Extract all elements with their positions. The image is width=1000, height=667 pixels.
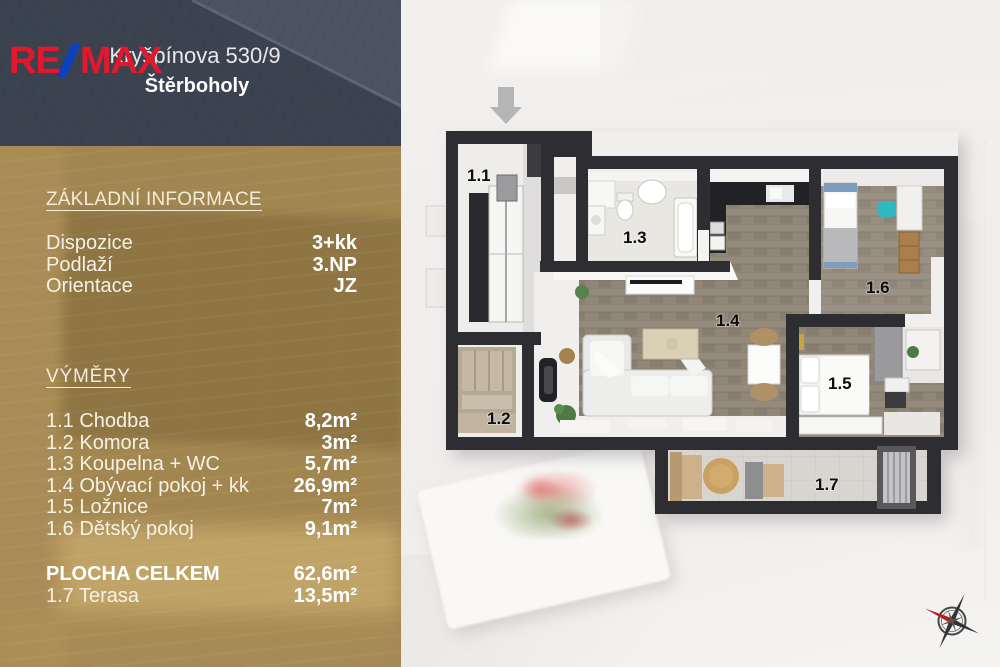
svg-text:1.1: 1.1: [467, 166, 491, 185]
svg-text:1.2: 1.2: [487, 409, 511, 428]
svg-text:1.6: 1.6: [866, 278, 890, 297]
svg-text:1.5: 1.5: [828, 374, 852, 393]
svg-text:1.3: 1.3: [623, 228, 647, 247]
svg-text:1.4: 1.4: [716, 311, 740, 330]
svg-text:1.7: 1.7: [815, 475, 839, 494]
